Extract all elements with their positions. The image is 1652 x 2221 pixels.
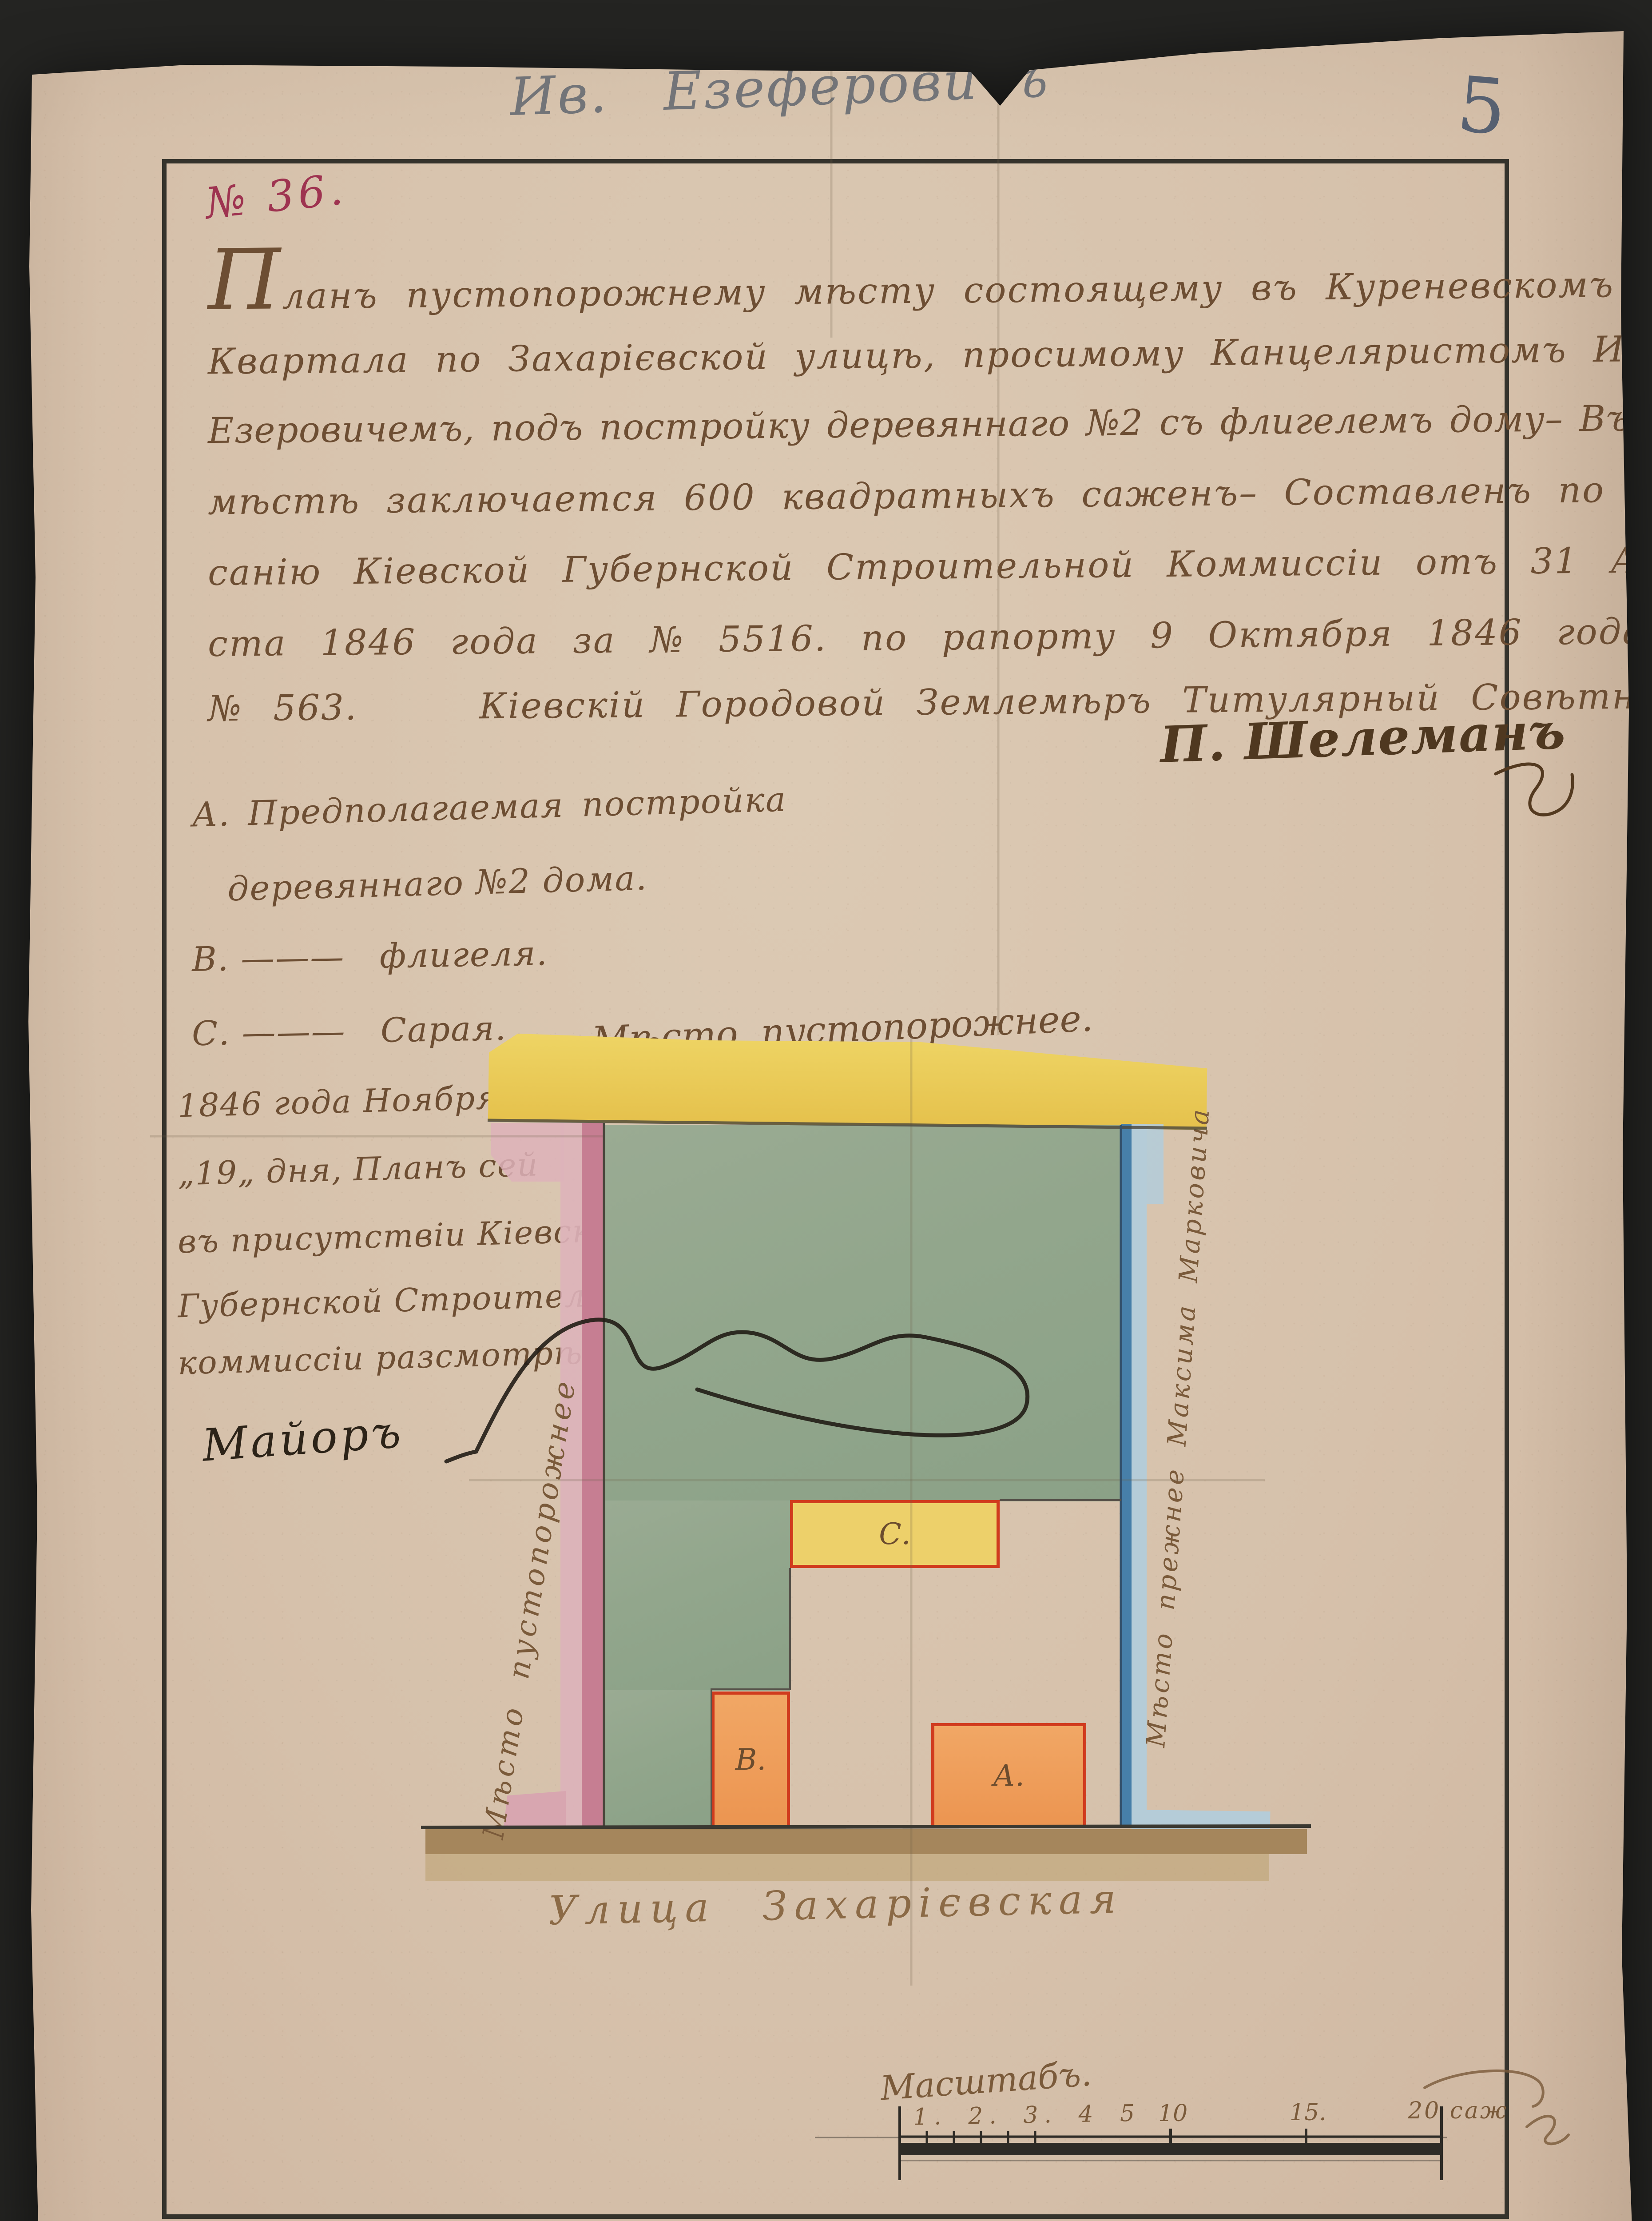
scale-tick-10: 10	[1158, 2100, 1187, 2127]
scale-tick-15: 15.	[1290, 2099, 1326, 2126]
plot-green-middle	[605, 1501, 790, 1691]
paper-shadow: Ив. Езеферовичъ 5 № 36. Планъ пустопорож…	[0, 0, 1652, 2221]
scale-ticks-1-5: 1. 2. 3. 4 5	[913, 2100, 1141, 2131]
legend-item-b: В. ——— флигеля.	[191, 933, 548, 979]
plan-blue-band	[1121, 1124, 1132, 1828]
plan-pink-band	[582, 1123, 605, 1830]
building-a-label: А.	[993, 1759, 1025, 1793]
building-a-house: А.	[931, 1723, 1086, 1828]
scale-tick-20: 20 саж	[1408, 2098, 1508, 2124]
legend-item-c: С. ——— Сарая.	[191, 1008, 507, 1053]
pencil-inscription: Ив. Езеферовичъ	[509, 48, 1051, 127]
page-number: 5	[1453, 60, 1510, 153]
plot-green-upper	[605, 1125, 1121, 1501]
street-band	[425, 1829, 1307, 1854]
street-band-light	[425, 1854, 1269, 1881]
building-c-label: С.	[879, 1517, 910, 1551]
building-b-outbuilding: В.	[711, 1692, 790, 1828]
building-c-barn: С.	[790, 1500, 1000, 1568]
scanned-document: Ив. Езеферовичъ 5 № 36. Планъ пустопорож…	[0, 0, 1652, 2221]
building-b-label: В.	[735, 1743, 766, 1777]
paper-sheet: Ив. Езеферовичъ 5 № 36. Планъ пустопорож…	[0, 0, 1652, 2221]
plot-green-lower	[605, 1690, 711, 1828]
